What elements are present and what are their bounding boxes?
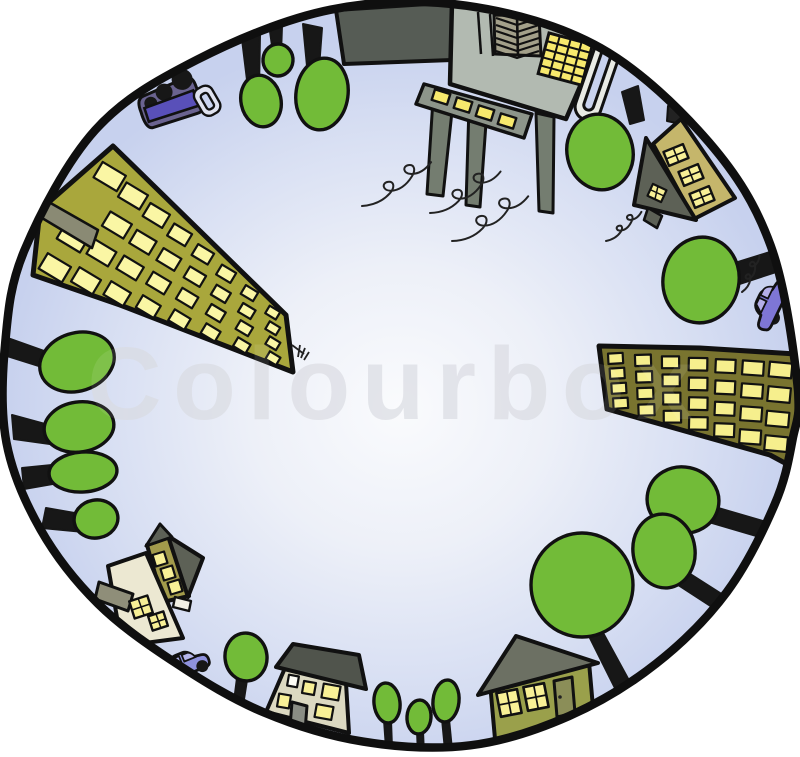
svg-text:Colourbox: Colourbox [87, 326, 705, 441]
